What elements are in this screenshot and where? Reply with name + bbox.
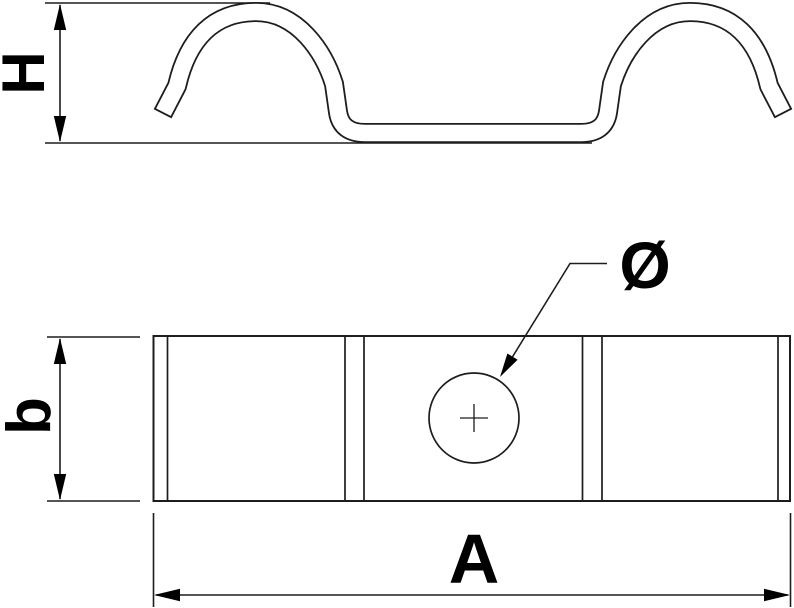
- clamp-profile-outer-outline: [163, 12, 783, 133]
- diameter-leader-line: [505, 264, 607, 370]
- height-dimension-label: H: [0, 51, 57, 94]
- b-arrow-up-icon: [54, 338, 66, 364]
- length-dimension-label: A: [449, 520, 500, 598]
- drawing-svg: H Ø b: [0, 0, 794, 608]
- b-arrow-down-icon: [54, 474, 66, 500]
- side-profile-view: H: [0, 3, 792, 143]
- clamp-profile-inner-clear: [163, 12, 783, 133]
- a-arrow-left-icon: [154, 589, 180, 601]
- h-arrow-up-icon: [54, 4, 66, 30]
- band-width-dimension-label: b: [0, 397, 64, 435]
- plan-view: Ø b A: [0, 228, 791, 607]
- a-arrow-right-icon: [764, 589, 790, 601]
- technical-drawing: H Ø b: [0, 0, 794, 608]
- diameter-leader-arrow-icon: [500, 354, 518, 378]
- hole-diameter-label: Ø: [619, 228, 670, 302]
- h-arrow-down-icon: [54, 116, 66, 142]
